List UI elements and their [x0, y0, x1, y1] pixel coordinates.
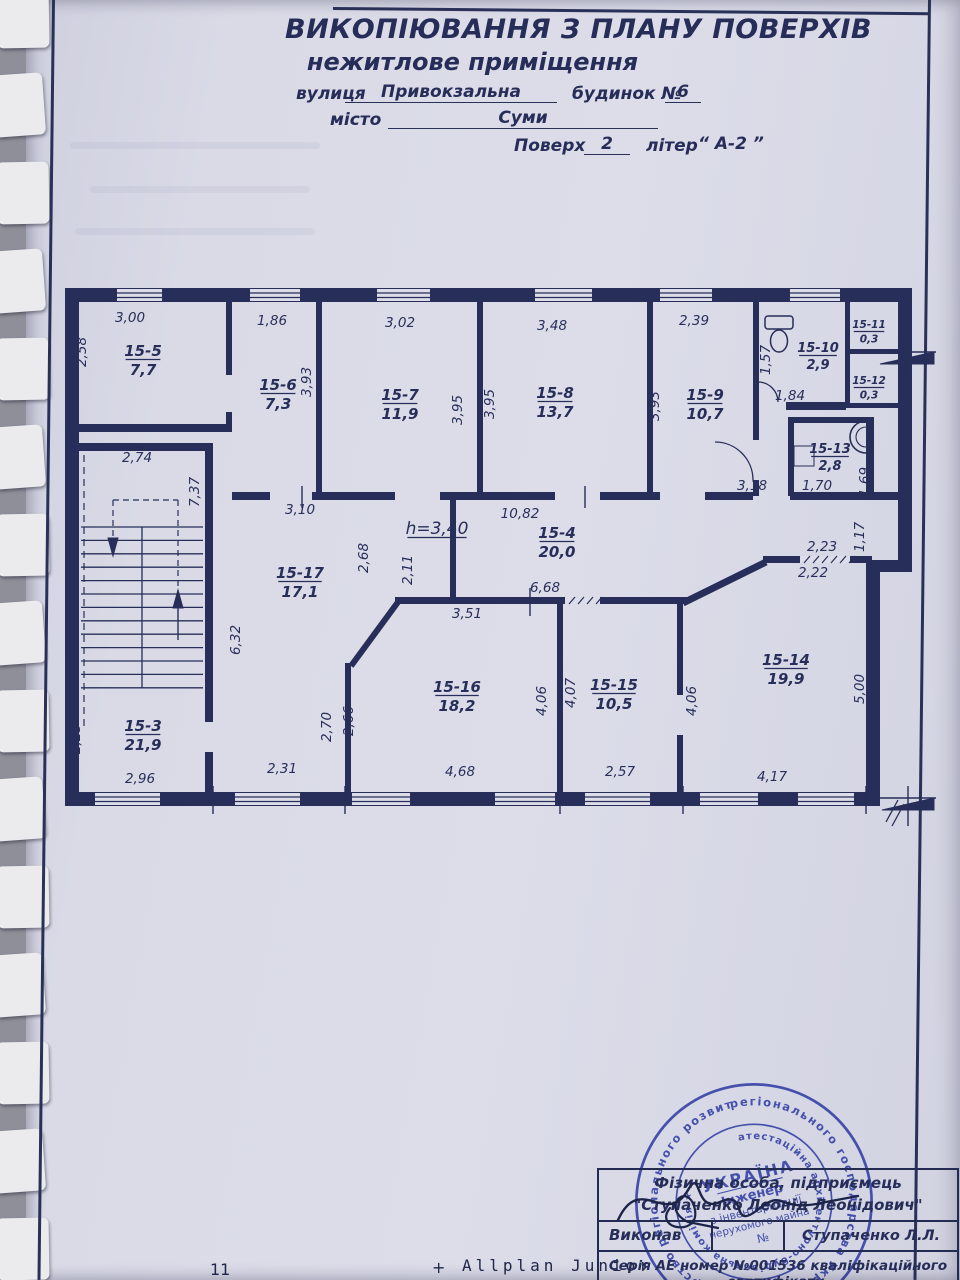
room-label: 10,5	[595, 695, 632, 713]
room-label: 15-5	[124, 342, 162, 360]
room-label: 0,3	[860, 390, 879, 402]
handwritten-signature	[600, 1142, 880, 1252]
bleed-through-line	[70, 142, 320, 149]
dimension-label: 2,23	[807, 539, 837, 555]
perforation-tab	[0, 162, 50, 225]
dimension-label: 6,32	[228, 625, 244, 655]
dimension-label: 3,93	[299, 367, 315, 397]
room-label: 15-9	[686, 386, 724, 404]
dimension-label: 2,39	[679, 313, 709, 329]
dimension-label: 3,00	[115, 310, 145, 326]
city-value: Суми	[388, 108, 658, 129]
room-label: 17,1	[281, 583, 318, 601]
room-label: 15-8	[536, 384, 574, 402]
letter-label: літер	[646, 136, 698, 156]
room-label: 15-7	[381, 386, 419, 404]
dimension-label: 4,07	[563, 678, 579, 708]
room-label: 15-13	[809, 442, 851, 457]
bleed-through-line	[75, 228, 315, 235]
dimension-label: 3,18	[737, 478, 767, 494]
room-label: 15-14	[762, 651, 810, 669]
plan-labels: 3,002,581,863,933,023,953,953,483,932,39…	[68, 310, 886, 787]
room-label: 7,3	[265, 395, 292, 413]
dimension-label: 3,95	[482, 389, 498, 419]
footer-edge-plus: +	[432, 1258, 445, 1277]
dimension-label: 2,11	[400, 555, 416, 585]
dimension-label: 10,82	[501, 506, 540, 522]
dimension-label: 3,95	[450, 395, 466, 425]
room-label: 15-16	[433, 678, 481, 696]
bleed-through-line	[90, 186, 310, 193]
dimension-label: 4,68	[445, 764, 475, 780]
photographed-document: ВИКОПІЮВАННЯ З ПЛАНУ ПОВЕРХІВ нежитлове …	[0, 0, 960, 1280]
city-label: місто	[330, 110, 381, 130]
building-value: 6	[665, 82, 701, 103]
street-value: Привокзальна	[345, 82, 557, 103]
dimension-label: 2,31	[267, 761, 297, 777]
room-label: 7,7	[130, 361, 157, 379]
dimension-label: 2,58	[74, 337, 90, 367]
room-label: 15-4	[538, 524, 576, 542]
dimension-label: 1,17	[852, 522, 868, 552]
dimension-label: 1,84	[775, 388, 805, 404]
room-label: 11,9	[381, 405, 418, 423]
perforation-tab	[0, 72, 46, 137]
dimension-label: 2,66	[341, 706, 357, 736]
dimension-label: 2,68	[356, 543, 372, 573]
dimension-label: h=3,40	[406, 519, 469, 539]
floor-plan-drawing: 3,002,581,863,933,023,953,953,483,932,39…	[40, 272, 940, 832]
walls	[65, 288, 912, 806]
room-label: 0,3	[860, 334, 879, 346]
footer-edge-number: 11	[210, 1260, 230, 1279]
dimension-label: 6,68	[530, 580, 560, 596]
dimension-label: 4,06	[684, 686, 700, 716]
room-label: 15-11	[852, 319, 886, 331]
dimension-label: 3,02	[385, 315, 415, 331]
perforation-tab	[0, 952, 46, 1017]
dimension-label: 3,10	[285, 502, 315, 518]
room-label: 15-3	[124, 717, 162, 735]
floor-label: Поверх	[514, 136, 585, 156]
dimension-label: 4,06	[534, 686, 550, 716]
room-label: 19,9	[767, 670, 804, 688]
room-label: 21,9	[124, 736, 161, 754]
dimension-label: 1,86	[257, 313, 287, 329]
room-label: 15-10	[797, 341, 839, 356]
perforation-tab	[0, 0, 50, 48]
dimension-label: 2,70	[319, 712, 335, 742]
room-label: 15-17	[276, 564, 325, 582]
dimension-label: 2,96	[125, 771, 155, 787]
room-label: 13,7	[536, 403, 574, 421]
dimension-label: 3,93	[647, 391, 663, 421]
dimension-label: 2,22	[798, 565, 828, 581]
room-label: 15-12	[852, 375, 886, 387]
room-label: 10,7	[686, 405, 724, 423]
dimension-label: 3,51	[452, 606, 482, 622]
document-subtitle: нежитлове приміщення	[300, 48, 645, 76]
room-label: 18,2	[438, 697, 475, 715]
software-watermark: Allplan Junior	[462, 1256, 653, 1275]
room-label: 2,8	[818, 459, 841, 474]
room-label: 2,9	[806, 358, 829, 373]
room-label: 20,0	[538, 543, 575, 561]
dimension-label: 1,57	[758, 345, 774, 375]
dimension-label: 5,00	[852, 674, 868, 704]
dimension-label: 2,74	[122, 450, 152, 466]
dimension-label: 2,57	[605, 764, 635, 780]
dimension-label: 3,48	[537, 318, 567, 334]
dimension-label: 2,25	[68, 724, 84, 754]
dimension-label: 1,69	[857, 467, 873, 497]
dimension-label: 1,70	[802, 478, 832, 494]
dimension-label: 7,37	[187, 477, 203, 507]
letter-value: “ А-2 ”	[698, 134, 764, 154]
room-label: 15-6	[259, 376, 297, 394]
perforation-tab	[0, 1218, 50, 1280]
dimension-label: 4,17	[757, 769, 787, 785]
room-label: 15-15	[590, 676, 638, 694]
document-title: ВИКОПІЮВАННЯ З ПЛАНУ ПОВЕРХІВ	[285, 14, 755, 45]
floor-value: 2	[584, 134, 630, 155]
